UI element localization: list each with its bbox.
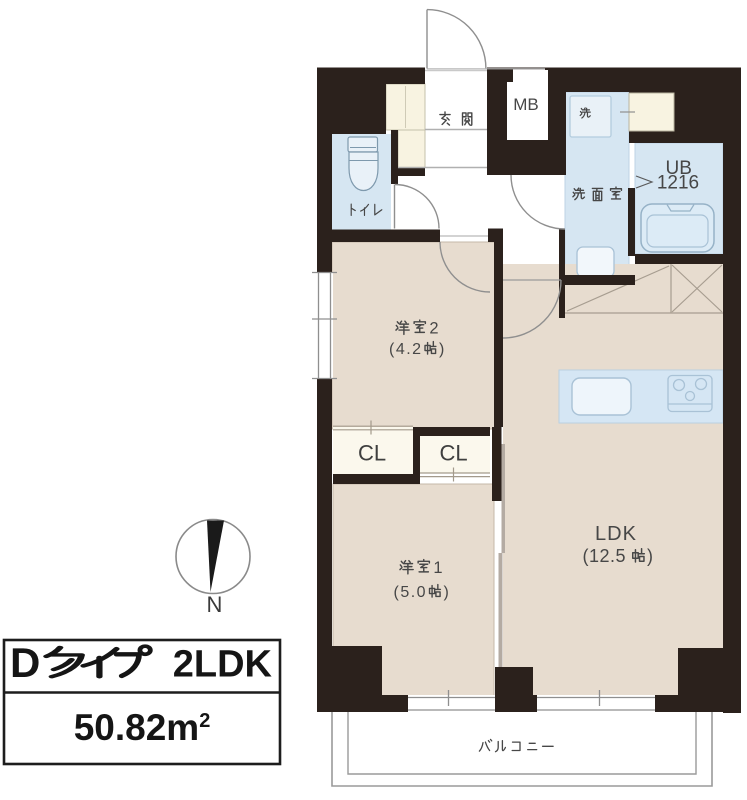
svg-text:(4.2: (4.2 [389, 341, 423, 358]
svg-text:): ) [444, 584, 449, 601]
svg-text:2: 2 [429, 319, 438, 337]
svg-text:(5.0: (5.0 [394, 584, 428, 601]
svg-text:CL: CL [358, 440, 386, 465]
svg-text:): ) [439, 341, 444, 358]
svg-text:CL: CL [439, 440, 467, 465]
svg-text:LDK: LDK [595, 523, 637, 545]
svg-text:N: N [207, 592, 223, 617]
svg-text:1216: 1216 [657, 173, 699, 194]
svg-text:50.82m2: 50.82m2 [74, 707, 211, 748]
svg-text:2LDK: 2LDK [173, 644, 273, 686]
svg-text:D: D [10, 639, 40, 686]
svg-text:MB: MB [513, 95, 539, 114]
svg-text:(12.5: (12.5 [583, 546, 627, 566]
svg-text:1: 1 [433, 559, 442, 577]
svg-text:): ) [647, 546, 653, 566]
